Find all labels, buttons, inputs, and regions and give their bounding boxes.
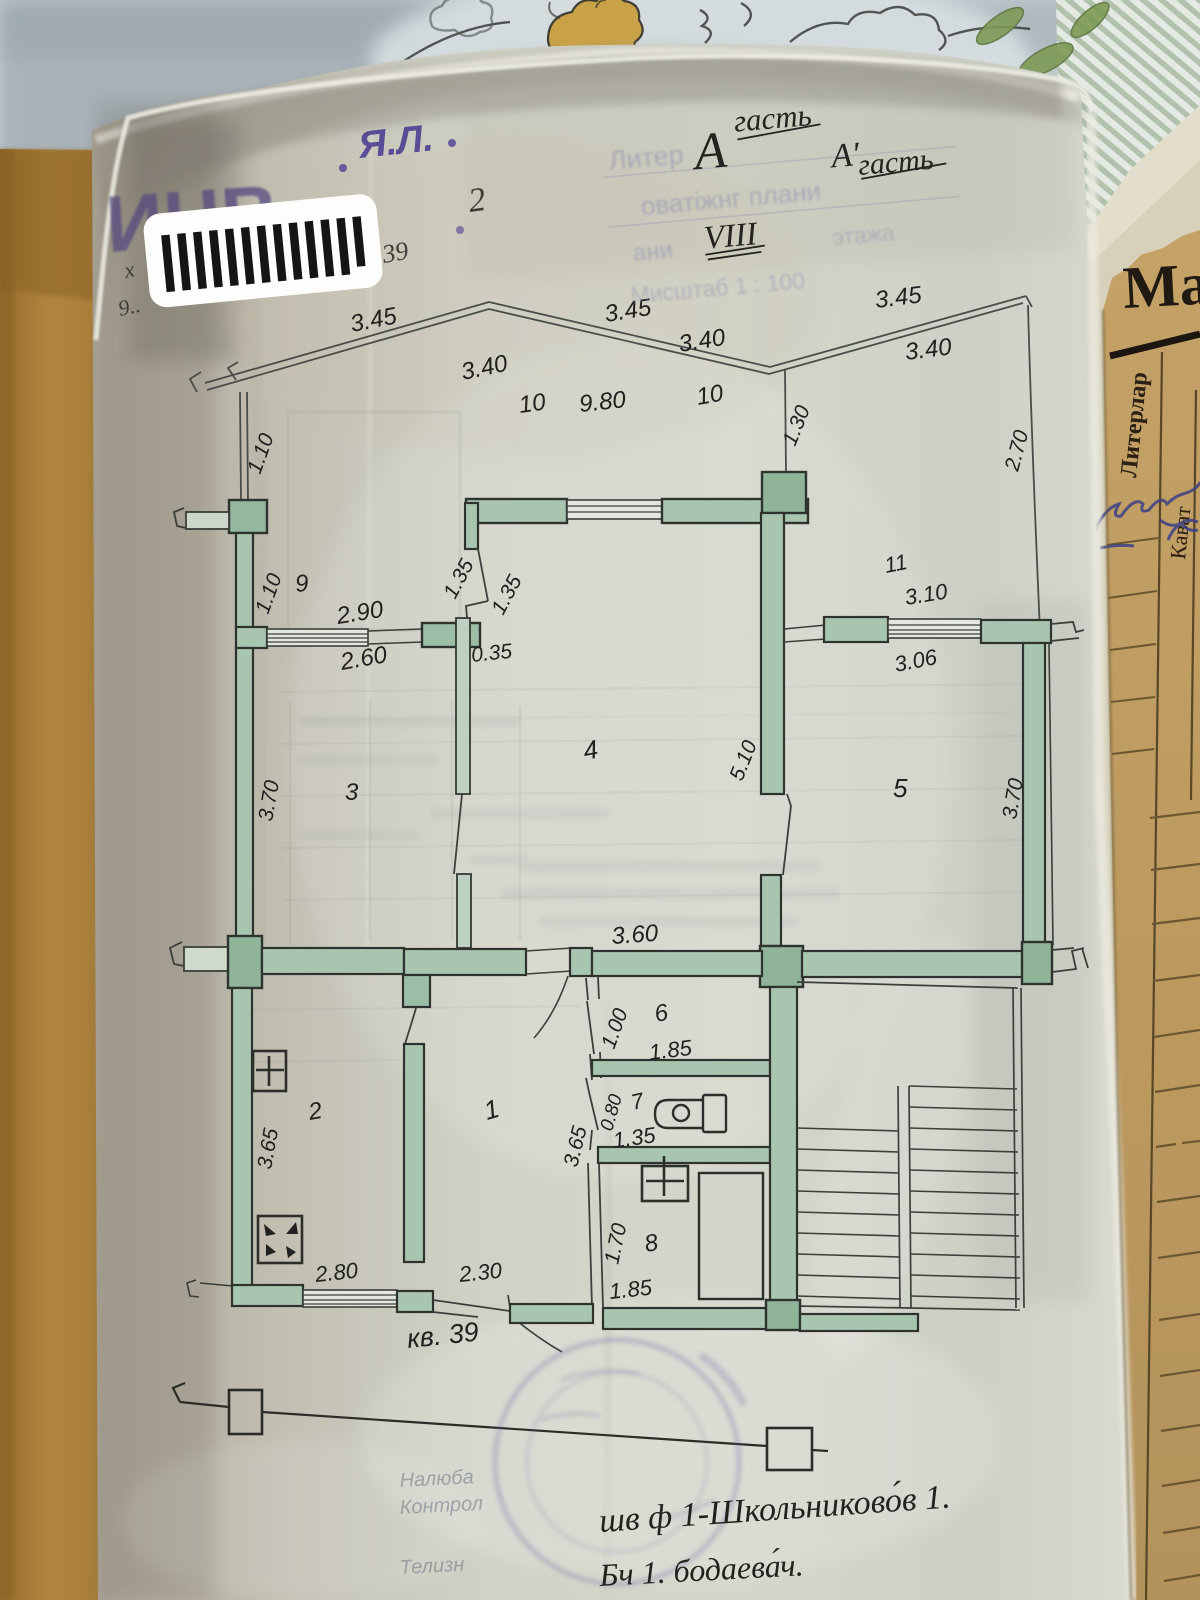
svg-text:1.85: 1.85: [648, 1035, 694, 1065]
svg-text:9: 9: [294, 570, 310, 598]
svg-text:2.30: 2.30: [457, 1258, 504, 1288]
svg-text:Ма: Ма: [1121, 251, 1200, 321]
svg-text:10: 10: [694, 380, 726, 411]
svg-text:гасть: гасть: [857, 143, 935, 182]
svg-text:39: 39: [379, 236, 411, 269]
svg-text:5: 5: [893, 773, 908, 803]
svg-text:Налюба: Налюба: [399, 1466, 474, 1492]
svg-text:этажа: этажа: [831, 219, 896, 250]
svg-text:3.45: 3.45: [873, 281, 923, 314]
svg-text:Телизн: Телизн: [399, 1554, 465, 1579]
svg-text:2.80: 2.80: [313, 1258, 360, 1288]
svg-text:3: 3: [345, 779, 359, 806]
svg-text:0.35: 0.35: [470, 640, 513, 667]
svg-text:9.80: 9.80: [578, 386, 628, 418]
svg-text:11: 11: [882, 549, 909, 578]
svg-text:Контрол: Контрол: [399, 1493, 483, 1519]
svg-text:3.40: 3.40: [903, 333, 953, 366]
svg-text:Я.Л.: Я.Л.: [356, 117, 436, 167]
svg-text:3.60: 3.60: [611, 920, 660, 950]
svg-text:ани: ани: [632, 237, 674, 267]
svg-text:1.85: 1.85: [608, 1275, 654, 1304]
svg-text:10: 10: [517, 388, 548, 419]
